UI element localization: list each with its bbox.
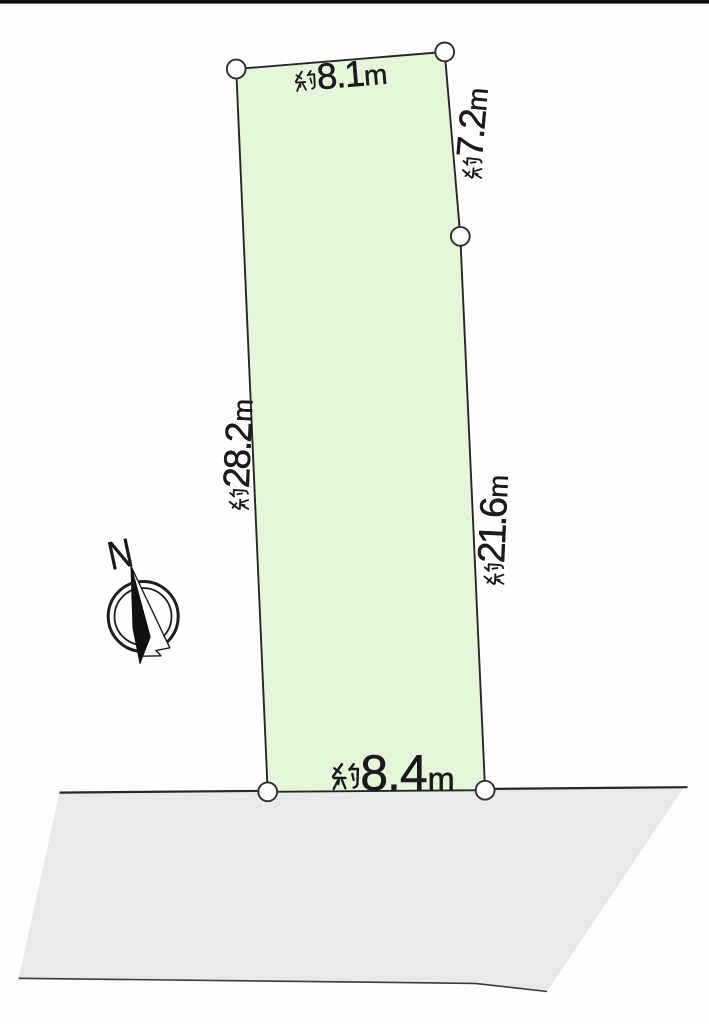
- svg-text:8.1: 8.1: [315, 53, 365, 98]
- svg-text:28.2: 28.2: [216, 422, 260, 488]
- svg-text:m: m: [428, 761, 455, 797]
- svg-text:21.6: 21.6: [471, 497, 516, 564]
- svg-text:8.4: 8.4: [360, 745, 427, 801]
- svg-text:m: m: [227, 398, 259, 422]
- svg-text:m: m: [461, 86, 494, 112]
- svg-text:m: m: [482, 474, 514, 498]
- svg-text:7.2: 7.2: [449, 108, 494, 158]
- svg-text:m: m: [363, 59, 389, 92]
